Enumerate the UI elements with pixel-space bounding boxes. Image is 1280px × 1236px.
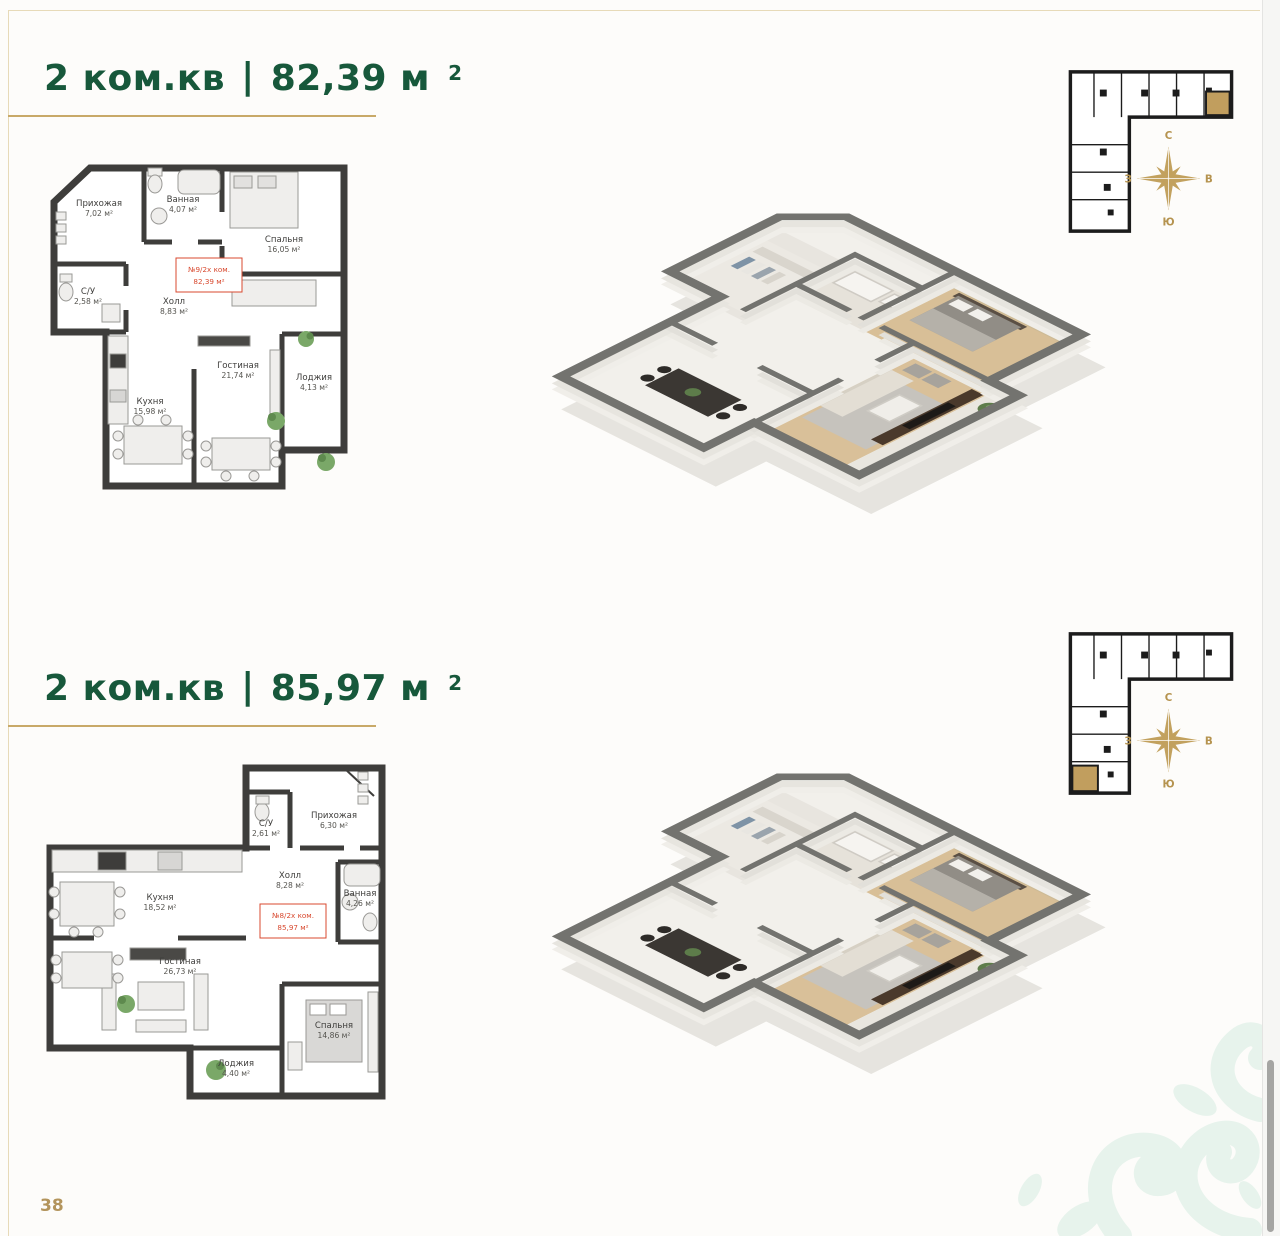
room-area: 21,74 м² [222,371,255,380]
room-label: С/У [259,819,274,829]
room-label: Гостиная [217,361,259,371]
compass-east: В [1205,173,1213,185]
section1-title-area: 82,39 м [271,58,430,99]
unit-badge-82: №9/2х ком. 82,39 м² [176,258,242,292]
room-label: Прихожая [76,199,122,209]
room-label: Холл [279,871,301,881]
room-label: Спальня [315,1021,353,1031]
compass-west: З [1125,173,1132,185]
room-label: Гостиная [159,957,201,967]
room-label: С/У [81,287,96,297]
room-label: Прихожая [311,811,357,821]
room-label: Ванная [167,195,200,205]
section1-title-underline [8,115,376,117]
compass-85: С Ю З В [1116,688,1221,793]
svg-text:85,97 м²: 85,97 м² [277,923,308,932]
keyplan-highlight-unit9 [1206,92,1230,116]
room-area: 4,40 м² [222,1069,250,1078]
room-area: 4,26 м² [346,899,374,908]
svg-text:82,39 м²: 82,39 м² [193,277,224,286]
room-area: 7,02 м² [85,209,113,218]
room-area: 6,30 м² [320,821,348,830]
room-area: 2,58 м² [74,297,102,306]
compass-south: Ю [1162,778,1174,790]
section2-title-separator: | [241,666,255,707]
compass-north: С [1165,130,1173,142]
scrollbar-thumb[interactable] [1267,1060,1274,1232]
room-area: 4,13 м² [300,383,328,392]
room-area: 8,83 м² [160,307,188,316]
compass-east: В [1205,735,1213,747]
section2-title-area-sup: 2 [448,671,462,695]
room-area: 4,07 м² [169,205,197,214]
room-label: Ванная [344,889,377,899]
room-label: Холл [163,297,185,307]
room-area: 16,05 м² [268,245,301,254]
room-label: Кухня [136,397,163,407]
page-left-border [8,10,9,1236]
compass-west: З [1125,735,1132,747]
section2-title-prefix: 2 ком.кв [44,668,225,709]
page-number: 38 [40,1196,64,1216]
svg-text:№8/2х ком.: №8/2х ком. [272,911,314,920]
compass-south: Ю [1162,216,1174,228]
section1-title-separator: | [241,56,255,97]
section1-title-prefix: 2 ком.кв [44,58,225,99]
room-area: 8,28 м² [276,881,304,890]
unit-badge-85: №8/2х ком. 85,97 м² [260,904,326,938]
room-area: 18,52 м² [144,903,177,912]
ornament-pattern [960,990,1262,1236]
compass-north: С [1165,692,1173,704]
section2-title: 2 ком.кв | 85,97 м2 [44,668,463,709]
page-right-strip [1262,0,1280,1236]
room-area: 2,61 м² [252,829,280,838]
compass-82: С Ю З В [1116,126,1221,231]
room-label: Спальня [265,235,303,245]
section2-title-underline [8,725,376,727]
section2-title-area: 85,97 м [271,668,430,709]
section1-title: 2 ком.кв | 82,39 м2 [44,58,463,99]
floorplan-2d-82: Прихожая 7,02 м² Ванная 4,07 м² Спальня … [26,154,376,504]
room-label: Лоджия [218,1059,254,1069]
room-label: Кухня [146,893,173,903]
room-area: 26,73 м² [164,967,197,976]
floorplan-2d-85: С/У 2,61 м² Прихожая 6,30 м² Холл 8,28 м… [38,752,398,1142]
room-area: 14,86 м² [318,1031,351,1040]
room-area: 15,98 м² [134,407,167,416]
svg-text:№9/2х ком.: №9/2х ком. [188,265,230,274]
keyplan-highlight-unit8 [1072,766,1098,792]
section1-title-area-sup: 2 [448,61,462,85]
page-top-border [8,10,1260,11]
room-label: Лоджия [296,373,332,383]
